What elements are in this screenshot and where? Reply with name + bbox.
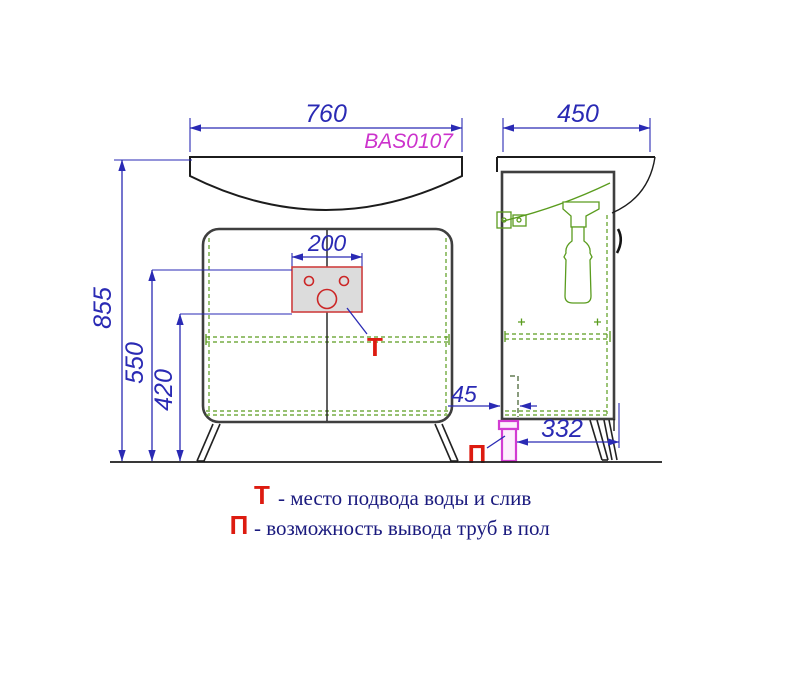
model-code: BAS0107: [364, 130, 454, 153]
marker-p: П: [468, 439, 487, 469]
dim-total-height: 855: [89, 160, 192, 461]
drawing-canvas: Т: [0, 0, 800, 687]
svg-text:855: 855: [89, 287, 117, 329]
washbasin-front: [190, 157, 462, 210]
svg-text:332: 332: [541, 415, 583, 443]
front-legs: [197, 424, 458, 461]
marker-t: Т: [367, 332, 383, 362]
floor-pipe: [499, 421, 518, 461]
svg-text:200: 200: [307, 230, 347, 256]
legend-text-pipe: - возможность вывода труб в пол: [254, 516, 550, 540]
furniture-dimension-drawing: Т: [0, 0, 800, 687]
svg-text:420: 420: [150, 369, 178, 411]
svg-text:45: 45: [451, 381, 477, 407]
side-legs: [590, 420, 617, 460]
svg-text:450: 450: [557, 100, 599, 128]
front-view: Т: [190, 157, 462, 461]
door-handle: [617, 229, 621, 253]
legend-text-water: - место подвода воды и слив: [278, 486, 531, 510]
svg-text:550: 550: [121, 342, 149, 384]
dim-side-depth: 450: [503, 100, 650, 152]
svg-text:760: 760: [305, 100, 347, 128]
legend: Т - место подвода воды и слив П - возмож…: [230, 480, 550, 540]
water-supply-panel: [292, 267, 362, 312]
legend-marker-pipe: П: [230, 510, 249, 540]
legend-marker-water: Т: [254, 480, 270, 510]
